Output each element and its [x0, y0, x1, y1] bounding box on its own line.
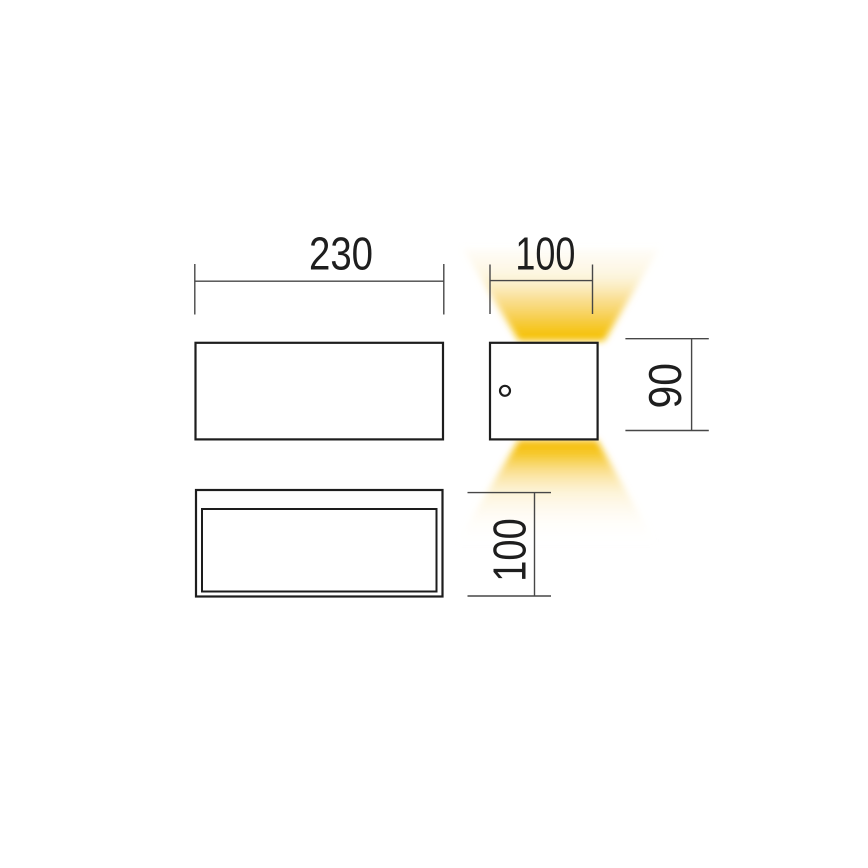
svg-text:90: 90	[639, 363, 691, 409]
svg-text:100: 100	[515, 227, 575, 279]
svg-text:230: 230	[309, 228, 373, 280]
svg-text:100: 100	[484, 518, 536, 582]
